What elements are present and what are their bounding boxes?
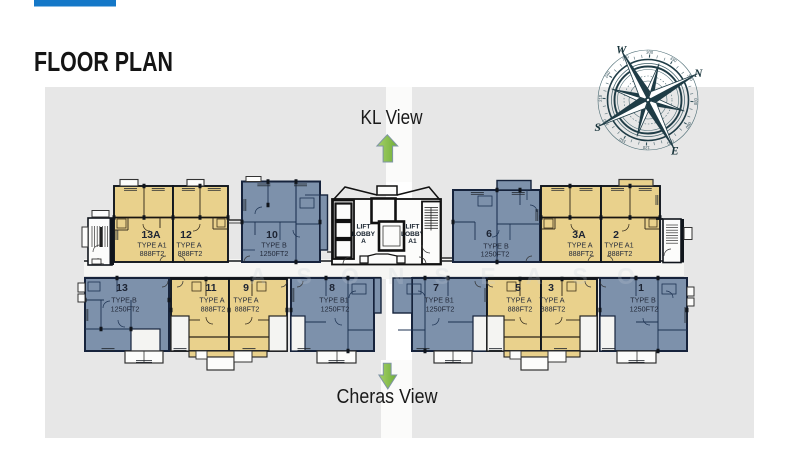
svg-text:S: S xyxy=(296,263,311,289)
svg-text:N: N xyxy=(693,68,703,80)
svg-text:888FT2: 888FT2 xyxy=(140,249,165,258)
svg-text:O: O xyxy=(617,263,635,289)
svg-text:KL View: KL View xyxy=(361,107,423,129)
svg-text:9: 9 xyxy=(243,282,249,294)
svg-text:LIFT: LIFT xyxy=(357,224,371,231)
svg-text:W: W xyxy=(616,45,627,57)
svg-text:1250FT2: 1250FT2 xyxy=(481,250,510,259)
svg-text:TYPE B1: TYPE B1 xyxy=(319,296,349,305)
svg-text:O: O xyxy=(341,263,359,289)
svg-text:10: 10 xyxy=(266,229,278,241)
svg-text:Cheras View: Cheras View xyxy=(337,386,438,408)
svg-text:S: S xyxy=(572,263,587,289)
svg-text:12: 12 xyxy=(180,229,192,241)
svg-text:TYPE A: TYPE A xyxy=(233,296,258,305)
svg-text:FLOOR PLAN: FLOOR PLAN xyxy=(34,46,173,77)
svg-text:TYPE A: TYPE A xyxy=(539,296,564,305)
svg-text:1250FT2: 1250FT2 xyxy=(630,305,659,314)
svg-text:A1: A1 xyxy=(408,238,417,245)
svg-text:3A: 3A xyxy=(572,229,586,241)
svg-text:888FT2: 888FT2 xyxy=(608,249,633,258)
svg-text:TYPE B: TYPE B xyxy=(111,296,137,305)
svg-text:1250FT2: 1250FT2 xyxy=(111,305,140,314)
svg-text:888FT2: 888FT2 xyxy=(201,305,226,314)
svg-text:A: A xyxy=(526,263,543,289)
svg-text:5: 5 xyxy=(515,282,521,294)
svg-text:TYPE B1: TYPE B1 xyxy=(424,296,454,305)
svg-text:888FT2: 888FT2 xyxy=(508,305,533,314)
svg-text:11: 11 xyxy=(205,282,216,294)
svg-text:13: 13 xyxy=(116,282,128,294)
svg-text:LOBBY: LOBBY xyxy=(401,231,425,238)
svg-text:888FT2: 888FT2 xyxy=(569,249,594,258)
svg-text:300: 300 xyxy=(646,50,654,55)
svg-text:888FT2: 888FT2 xyxy=(235,305,260,314)
svg-text:S: S xyxy=(434,263,449,289)
svg-text:E: E xyxy=(480,263,495,289)
svg-text:210: 210 xyxy=(598,94,603,102)
svg-text:2: 2 xyxy=(613,229,619,241)
svg-text:N: N xyxy=(388,263,405,289)
svg-text:1250FT2: 1250FT2 xyxy=(426,305,455,314)
svg-text:1: 1 xyxy=(638,282,644,294)
svg-text:888FT2: 888FT2 xyxy=(541,305,566,314)
svg-text:8: 8 xyxy=(329,282,335,294)
svg-text:A: A xyxy=(250,263,267,289)
svg-text:1250FT2: 1250FT2 xyxy=(260,249,289,258)
svg-text:TYPE A: TYPE A xyxy=(506,296,531,305)
svg-text:030: 030 xyxy=(693,98,698,106)
svg-text:LOBBY: LOBBY xyxy=(352,231,376,238)
svg-text:TYPE B: TYPE B xyxy=(630,296,656,305)
svg-text:LIFT: LIFT xyxy=(406,224,420,231)
svg-text:A: A xyxy=(361,238,366,245)
svg-text:120: 120 xyxy=(642,145,650,150)
svg-text:13A: 13A xyxy=(141,229,161,241)
svg-text:TYPE A: TYPE A xyxy=(199,296,224,305)
svg-text:E: E xyxy=(670,145,679,157)
svg-text:S: S xyxy=(594,122,600,134)
svg-text:3: 3 xyxy=(548,282,554,294)
svg-text:6: 6 xyxy=(486,228,492,240)
svg-text:1250FT2: 1250FT2 xyxy=(321,305,350,314)
